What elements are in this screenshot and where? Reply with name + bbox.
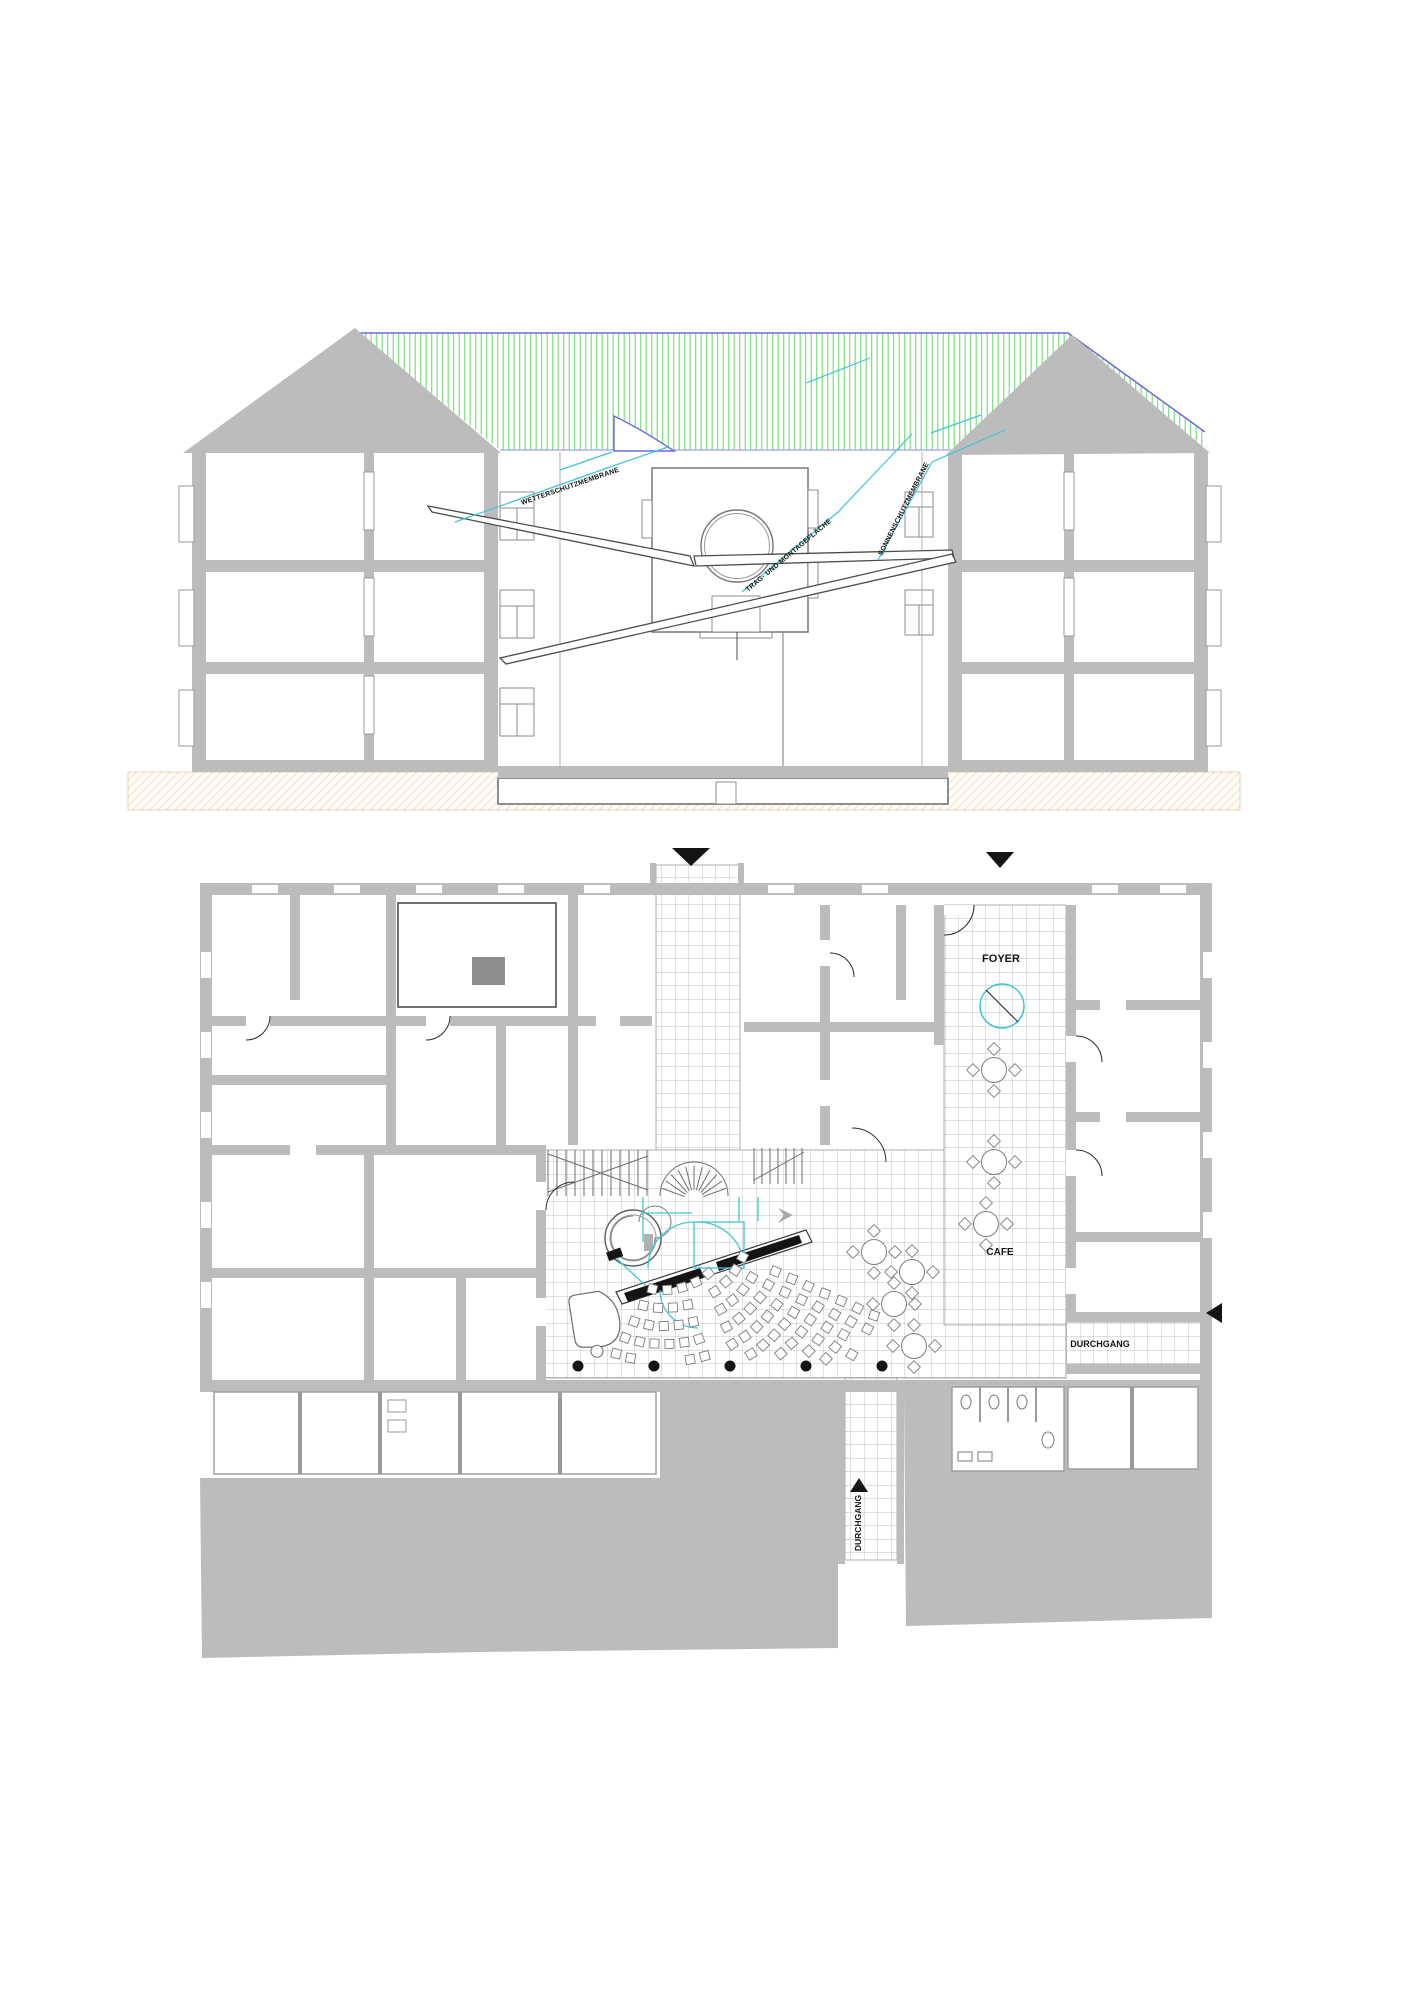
audience-chair: [662, 1285, 672, 1295]
left-slab-2: [192, 662, 498, 674]
window-gap: [201, 1032, 211, 1058]
label-cafe: CAFE: [986, 1247, 1014, 1258]
podium-step: [700, 632, 772, 638]
audience-chair: [683, 1299, 694, 1310]
hall-floor-slab: [498, 766, 948, 778]
audience-chair: [638, 1300, 649, 1311]
basement-pit: [716, 782, 736, 804]
audience-chair: [668, 1303, 677, 1312]
north-entrance-arrow: [672, 848, 710, 866]
northwest-room: [398, 903, 556, 1007]
right-court-wall: [948, 452, 962, 772]
window-gap: [584, 885, 610, 893]
audience-chair: [625, 1353, 635, 1363]
left-slab-1: [192, 560, 498, 572]
foyer-floor: [944, 905, 1066, 1325]
right-slab-1: [948, 560, 1208, 572]
drawing-sheet: WETTERSCHUTZMEMBRANE TRAG- UND MONTAGEFL…: [0, 0, 1414, 2000]
window-gap: [1203, 1212, 1213, 1238]
audience-chair: [677, 1282, 688, 1293]
northeast-entrance-arrow: [986, 852, 1014, 868]
audience-chair: [611, 1348, 622, 1359]
window-gap: [201, 952, 211, 978]
audience-chair: [665, 1339, 674, 1348]
audience-chair: [679, 1337, 689, 1347]
window-gap: [1203, 1132, 1213, 1158]
audience-chair: [699, 1351, 710, 1362]
south-rooms: [214, 1392, 656, 1474]
right-slab-2: [948, 662, 1208, 674]
audience-chair: [644, 1320, 655, 1331]
ground-floor-plan: FOYER CAFE DURCHGANG DURCHGANG: [200, 848, 1222, 1658]
audience-chair: [659, 1321, 668, 1330]
cafe-table: [862, 1240, 887, 1265]
window-gap: [416, 885, 442, 893]
cafe-table: [982, 1058, 1007, 1083]
label-passage-south: DURCHGANG: [853, 1495, 863, 1552]
building-cross-section: WETTERSCHUTZMEMBRANE TRAG- UND MONTAGEFL…: [128, 328, 1240, 810]
window-gap: [201, 1112, 211, 1138]
audience-chair: [688, 1316, 699, 1327]
south-passage-wall-left: [838, 1392, 845, 1564]
wc-block: [952, 1387, 1064, 1471]
stage-box-tab-1: [808, 490, 818, 528]
vestibule-wall-left: [650, 863, 656, 895]
cafe-table: [900, 1260, 925, 1285]
window-gap: [768, 885, 794, 893]
stage-box-tab-3: [642, 500, 652, 538]
audience-chair: [653, 1303, 662, 1312]
audience-chair: [634, 1336, 645, 1347]
window-gap: [498, 885, 524, 893]
window-gap: [1203, 952, 1213, 978]
audience-chair: [674, 1320, 684, 1330]
north-entry-hall-floor: [656, 865, 740, 1157]
left-facade-windows: [179, 472, 374, 746]
left-court-wall: [484, 452, 498, 772]
south-passage-wall-right: [897, 1392, 904, 1564]
label-foyer: FOYER: [982, 953, 1020, 965]
northwest-room-core: [472, 957, 505, 985]
window-gap: [862, 885, 888, 893]
window-gap: [334, 885, 360, 893]
window-gap: [201, 1282, 211, 1308]
right-ground-slab: [948, 760, 1208, 772]
cafe-table: [882, 1292, 907, 1317]
window-gap: [1160, 885, 1186, 893]
audience-chair: [685, 1354, 695, 1364]
label-passage-east: DURCHGANG: [1070, 1339, 1130, 1349]
cafe-table: [974, 1212, 999, 1237]
window-gap: [201, 1202, 211, 1228]
vestibule-wall-right: [738, 863, 744, 895]
window-gap: [1092, 885, 1118, 893]
label-roof-membrane: WETTERSCHUTZMEMBRANE: [520, 467, 620, 507]
window-gap: [1203, 1042, 1213, 1068]
window-gap: [252, 885, 278, 893]
cafe-table: [902, 1334, 927, 1359]
cafe-table: [982, 1150, 1007, 1175]
audience-chair: [650, 1339, 659, 1348]
drawing-canvas: WETTERSCHUTZMEMBRANE TRAG- UND MONTAGEFL…: [0, 0, 1414, 2000]
left-ground-slab: [192, 760, 498, 772]
audience-chair: [647, 1284, 658, 1295]
